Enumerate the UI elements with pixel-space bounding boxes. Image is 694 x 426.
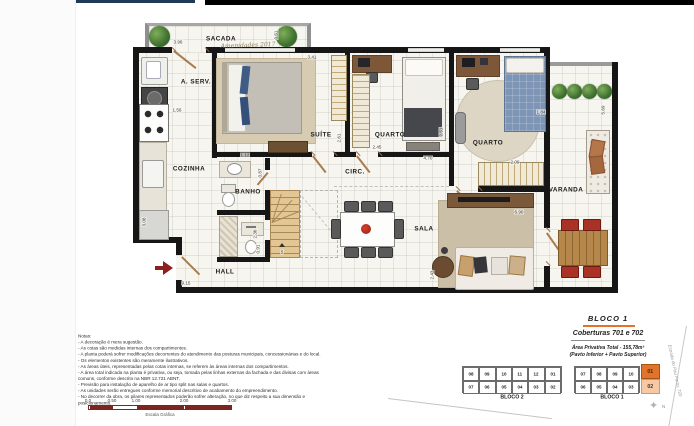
- sacada-plant-left: [149, 26, 170, 47]
- room-label-cozinha: COZINHA: [173, 166, 205, 173]
- side-table: [432, 256, 454, 278]
- dimension-label: 2.09: [510, 160, 520, 165]
- wall-varanda-right: [612, 62, 618, 293]
- q2-desk-items-2: [480, 58, 488, 65]
- dimension-label: 3.96: [173, 40, 183, 45]
- scale-tick-label: 0.0: [85, 398, 91, 403]
- dimension-label: 0.91: [256, 244, 261, 254]
- varanda-chair: [583, 219, 601, 231]
- dining-chair: [344, 201, 359, 212]
- suite-headboard: [222, 62, 227, 132]
- stairs-up-arrow: [279, 243, 285, 247]
- scale-segments: [88, 405, 232, 410]
- dimension-label: 5.69: [601, 105, 606, 115]
- dimension-label: 9.15: [181, 281, 191, 286]
- stairs-step-count: 5: [280, 250, 284, 255]
- q1-wardrobe: [352, 74, 370, 148]
- q2-desk-items: [462, 58, 475, 67]
- sofa-pillow-dark: [473, 256, 488, 273]
- q2-window: [500, 48, 540, 52]
- q1-bench: [406, 142, 440, 151]
- dining-chair: [361, 247, 376, 258]
- scale-tick-label: 1.00: [132, 398, 141, 403]
- exterior-patch-topright: [550, 36, 618, 62]
- page: 5: [0, 0, 694, 426]
- q2-lounge-chair: [455, 112, 466, 144]
- info-bloco-title: BLOCO 1: [588, 314, 628, 323]
- info-accent-underline: [583, 325, 635, 327]
- dimension-label: 1.84: [536, 110, 546, 115]
- sofa-pillow-white: [491, 257, 508, 275]
- info-gray-underline: [571, 340, 645, 341]
- varanda-chair: [561, 219, 579, 231]
- note-line: - A planta poderá sofrer modificações de…: [78, 351, 323, 357]
- q2-chair: [466, 78, 479, 90]
- q1-desk-items: [358, 58, 370, 67]
- note-line: - A área total indicada na planta é priv…: [78, 369, 323, 381]
- room-label-sute: SUÍTE: [310, 132, 331, 139]
- q1-blanket: [404, 108, 442, 137]
- entrance-arrow-tail: [155, 266, 163, 270]
- scale-bar: 0.00.501.002.003.00 Escala Gráfica: [88, 398, 232, 420]
- scale-tick-label: 0.50: [108, 398, 117, 403]
- dimension-label: 2.36: [253, 229, 258, 239]
- room-label-quarto: QUARTO: [473, 140, 503, 147]
- wall-banho-divider: [217, 210, 265, 215]
- dimension-label: 1.12: [240, 153, 250, 158]
- dining-chair: [378, 247, 393, 258]
- banho-toilet-bowl: [222, 192, 235, 207]
- dimension-label: 6.90: [514, 210, 524, 215]
- varanda-chair: [561, 266, 579, 278]
- dimension-label: 2.45: [372, 145, 382, 150]
- scale-tick-label: 2.00: [180, 398, 189, 403]
- dimension-label: 0.51: [274, 30, 279, 40]
- info-unidades: Coberturas 701 e 702: [573, 330, 643, 337]
- varanda-chair: [583, 266, 601, 278]
- q2-wardrobe: [478, 162, 544, 186]
- wall-bedrooms-bottom-c: [378, 152, 449, 157]
- dimension-label: 2.61: [337, 133, 342, 143]
- scale-caption: Escala Gráfica: [145, 412, 174, 417]
- wall-hall-left-upper: [176, 237, 182, 255]
- stairs: [270, 190, 300, 258]
- wall-banho-right-a: [265, 158, 270, 170]
- sofa-pillow-tan-2: [508, 255, 526, 275]
- wall-sala-varanda-lower: [544, 266, 550, 287]
- dimension-label: 3.41: [307, 55, 317, 60]
- dimension-label: 4.70: [423, 156, 433, 161]
- scale-ticks: 0.00.501.002.003.00: [88, 398, 232, 404]
- laundry-tank-basin: [146, 61, 161, 79]
- info-panel: BLOCO 1 Coberturas 701 e 702 Área Privat…: [540, 305, 680, 360]
- wall-q1-q2: [449, 53, 454, 186]
- entrance-arrow-icon: [163, 261, 173, 275]
- varanda-plant: [582, 84, 597, 99]
- info-area: Área Privativa Total - 155,78m²: [572, 345, 644, 351]
- circ-sala-dashed-line: [334, 186, 449, 187]
- dining-chair: [378, 201, 393, 212]
- q2-pillow: [506, 58, 544, 73]
- q1-pillow: [405, 59, 443, 76]
- varanda-railing: [550, 62, 612, 66]
- dimension-label: 2.43: [430, 270, 435, 280]
- info-pavimentos: (Pavto Inferior + Pavto Superior): [570, 352, 647, 358]
- q1-window: [408, 48, 444, 52]
- dimension-label: 2.51: [439, 127, 444, 137]
- floor-lamp: [441, 247, 448, 254]
- suite-wardrobe: [331, 55, 347, 121]
- room-label-hall: HALL: [216, 269, 235, 276]
- room-label-quarto: QUARTO: [375, 132, 405, 139]
- sacada-plant-right: [276, 26, 297, 47]
- dining-chair: [344, 247, 359, 258]
- notes-list: - A decoração é mera sugestão.- As cotas…: [78, 339, 323, 406]
- varanda-plant: [552, 84, 567, 99]
- suite-dresser: [268, 141, 308, 153]
- dining-chair: [361, 201, 376, 212]
- wall-q2-bottom: [478, 186, 544, 192]
- varanda-table: [558, 230, 608, 266]
- shower-stall: [219, 216, 238, 257]
- scale-tick-label: 3.00: [228, 398, 237, 403]
- varanda-plant: [597, 84, 612, 99]
- wall-banho-bottom: [217, 257, 270, 262]
- scale-segment: [184, 406, 231, 409]
- tv: [458, 197, 510, 202]
- dimension-label: 3.08: [142, 217, 147, 227]
- room-label-sacada: SACADA: [206, 36, 236, 43]
- varanda-plant: [567, 84, 582, 99]
- scale-segment: [136, 406, 183, 409]
- notes-block: Notas: - A decoração é mera sugestão.- A…: [78, 333, 328, 403]
- room-label-aserv: A. SERV.: [181, 79, 211, 86]
- room-label-banho: BANHO: [235, 189, 261, 196]
- room-label-sala: SALA: [414, 226, 433, 233]
- stove: [139, 104, 169, 142]
- dimension-label: 0.87: [258, 168, 263, 178]
- wall-bottom: [176, 287, 618, 293]
- dining-chair-side: [331, 219, 341, 239]
- dining-chair-side: [394, 219, 404, 239]
- table-flowers: [361, 224, 371, 234]
- banho2-faucet: [246, 226, 256, 228]
- kitchen-sink: [142, 160, 164, 188]
- banho-sink: [227, 163, 242, 175]
- scale-segment: [89, 406, 113, 409]
- dimension-label: 1.56: [172, 108, 182, 113]
- varanda-bench-pillow-2: [589, 155, 605, 175]
- room-label-varanda: VARANDA: [549, 187, 584, 194]
- scale-segment: [113, 406, 137, 409]
- room-label-circ: CIRC.: [345, 169, 365, 176]
